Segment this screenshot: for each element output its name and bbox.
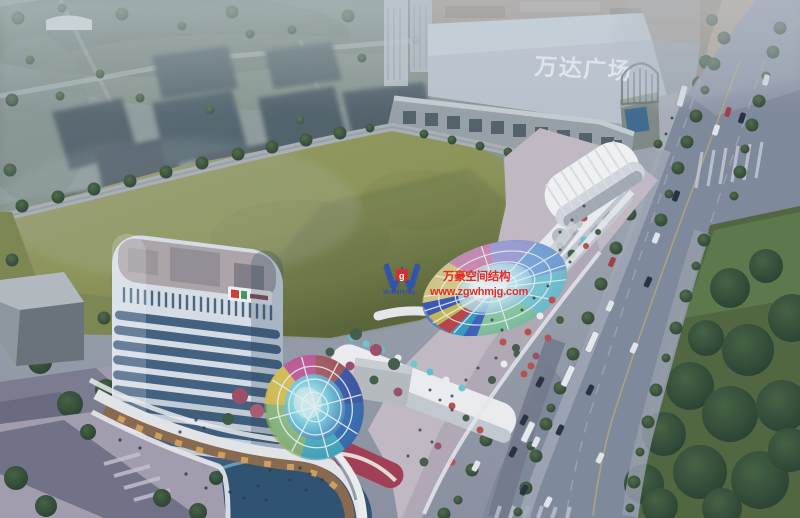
svg-text:g: g [399, 271, 405, 281]
svg-text:www.zgwhmjg.com: www.zgwhmjg.com [429, 286, 528, 298]
svg-text:万豪空间结构: 万豪空间结构 [442, 269, 511, 283]
svg-text:WANHAO: WANHAO [383, 289, 416, 296]
